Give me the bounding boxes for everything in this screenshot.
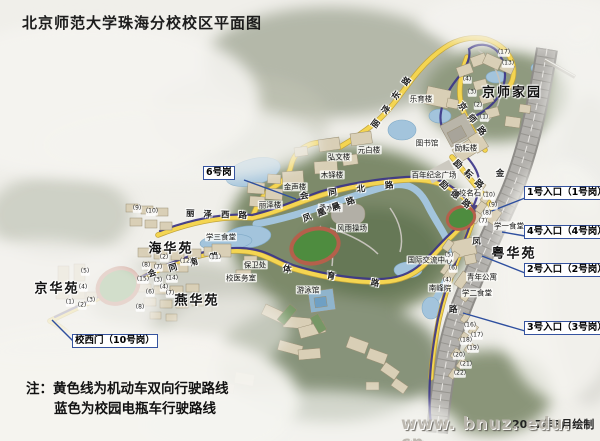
legend-line-motor: 注：黄色线为机动车双向行驶路线	[26, 379, 229, 399]
gate-callout-line	[52, 320, 73, 341]
legend-note-prefix: 注：	[26, 381, 53, 397]
gate-callout-line	[244, 180, 296, 199]
map-title: 北京师范大学珠海分校校区平面图	[22, 12, 262, 33]
gate-callout-line	[463, 313, 525, 331]
campus-map-page: 京师家园海华苑燕华苑京华苑粤华苑乐育楼图书馆励耘楼弘文楼元白楼木铎楼金声楼丽泽楼…	[0, 0, 600, 441]
legend-cart-route-text: 蓝色为校园电瓶车行驶路线	[26, 399, 229, 419]
gate-callout-line	[489, 198, 525, 212]
gate-callout-line	[482, 256, 525, 273]
callout-lines-layer	[0, 0, 600, 441]
legend-motor-route-text: 黄色线为机动车双向行驶路线	[53, 381, 229, 397]
gate-callout-line	[502, 232, 525, 236]
legend-note: 注：黄色线为机动车双向行驶路线 蓝色为校园电瓶车行驶路线	[26, 379, 229, 419]
site-watermark: www. bnuz. edu. cn	[401, 414, 600, 441]
